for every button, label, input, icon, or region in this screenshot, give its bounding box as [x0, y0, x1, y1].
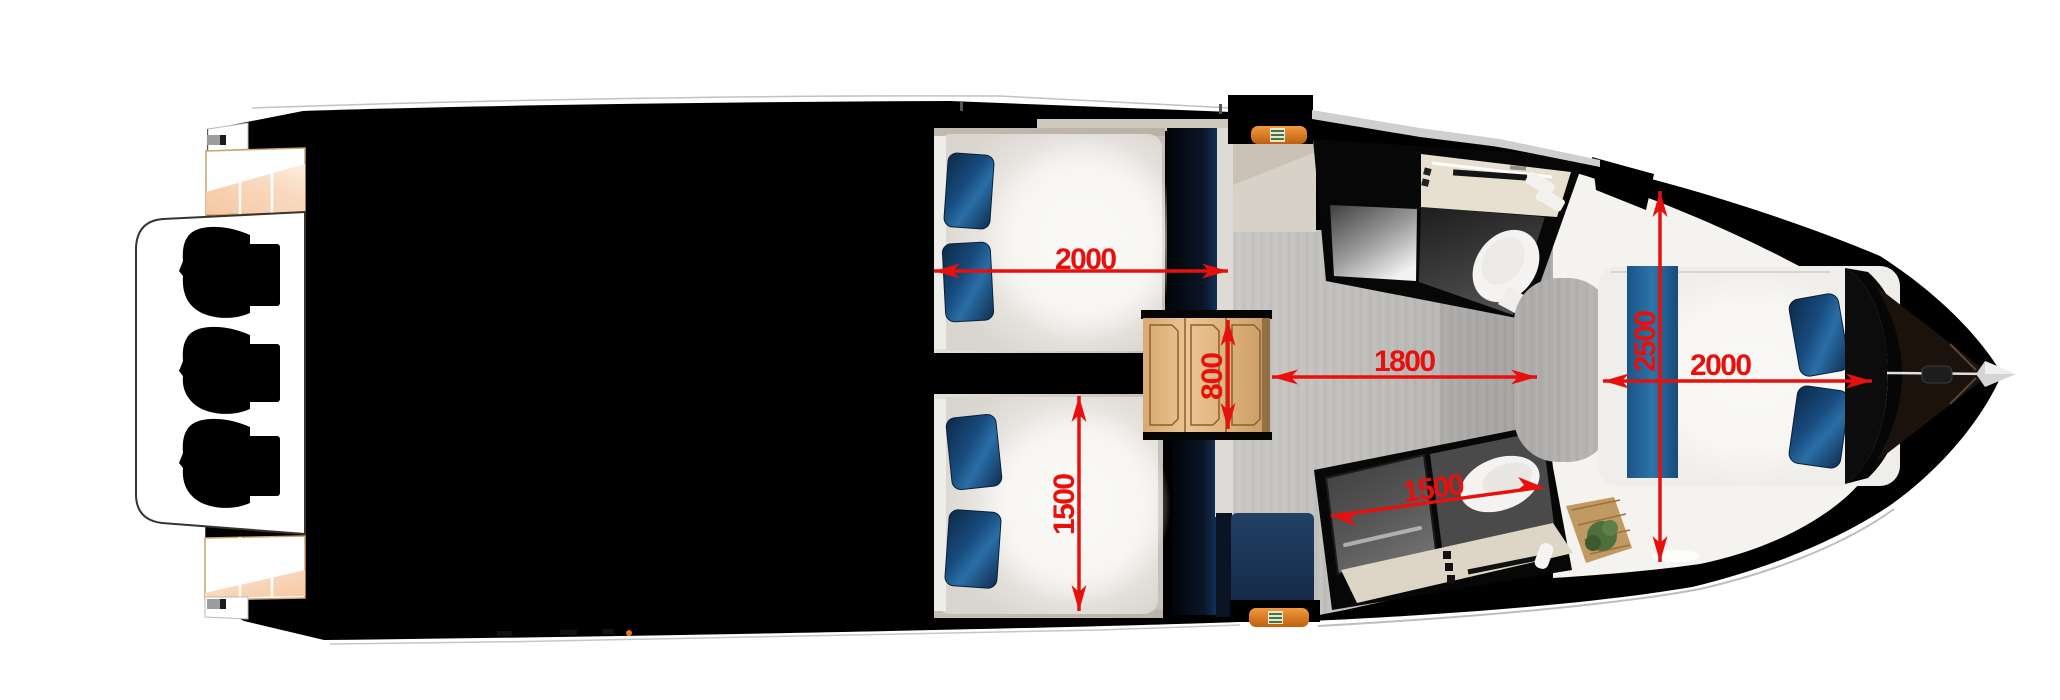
- svg-text:2500: 2500: [1629, 310, 1662, 372]
- svg-text:1500: 1500: [1048, 473, 1081, 535]
- svg-text:1800: 1800: [1374, 345, 1436, 378]
- svg-text:800: 800: [1196, 352, 1229, 400]
- svg-text:2000: 2000: [1690, 349, 1752, 382]
- svg-text:2000: 2000: [1055, 243, 1117, 276]
